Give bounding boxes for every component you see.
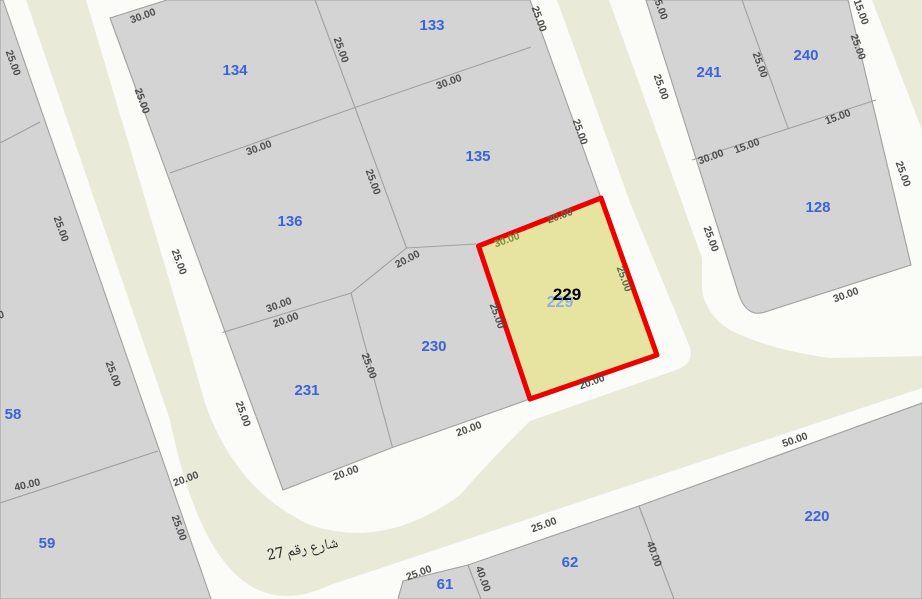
svg-text:230: 230 — [421, 338, 446, 355]
svg-text:62: 62 — [562, 554, 579, 571]
svg-text:136: 136 — [277, 213, 302, 230]
svg-text:231: 231 — [294, 382, 319, 399]
svg-text:59: 59 — [39, 535, 56, 552]
svg-text:134: 134 — [222, 62, 248, 79]
svg-text:220: 220 — [804, 508, 829, 525]
svg-text:61: 61 — [437, 576, 454, 593]
svg-text:240: 240 — [793, 47, 818, 64]
svg-text:128: 128 — [805, 199, 830, 216]
svg-text:135: 135 — [465, 148, 490, 165]
svg-text:58: 58 — [5, 406, 22, 423]
svg-text:241: 241 — [696, 64, 721, 81]
svg-text:229: 229 — [553, 285, 581, 304]
svg-text:133: 133 — [419, 17, 444, 34]
